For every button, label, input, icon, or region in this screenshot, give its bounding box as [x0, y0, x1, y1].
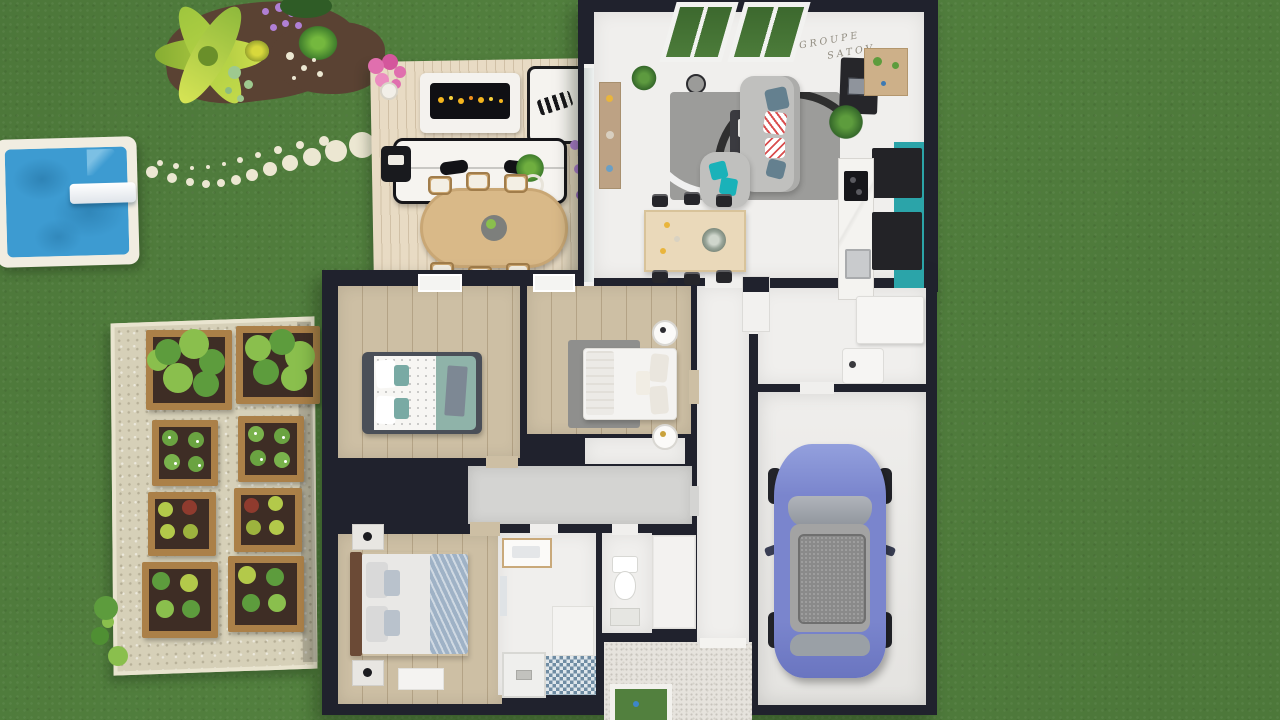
- flower-specks: [168, 436, 171, 439]
- deck-chair: [504, 174, 528, 193]
- bath-cabinet: [552, 606, 594, 656]
- stepping-stones: [146, 166, 386, 206]
- cooktop: [844, 171, 868, 201]
- planter-greens: [142, 562, 218, 638]
- kitchen-base-cabinet: [872, 212, 922, 270]
- car-body: [774, 444, 886, 678]
- bedroom-1-window: [418, 274, 462, 292]
- nightstand: [352, 660, 384, 686]
- swimming-pool: [0, 136, 140, 268]
- pebbles: [286, 52, 294, 60]
- bed-2: [583, 348, 677, 420]
- planter-greens: [228, 556, 304, 632]
- flower-specks: [254, 432, 257, 435]
- hall-console: [742, 276, 770, 332]
- nightstand-round: [652, 424, 678, 450]
- tray-plant: [486, 219, 496, 229]
- dining-table: [644, 210, 746, 272]
- leafy-greens: [238, 566, 256, 584]
- entry-lawn-inset: [610, 684, 672, 720]
- planter-strawberry: [152, 420, 218, 486]
- headboard: [350, 552, 362, 656]
- washer-unit: [856, 296, 924, 344]
- drape: [586, 351, 614, 415]
- outdoor-fireplace: [420, 73, 520, 133]
- planter-lettuce: [234, 488, 302, 552]
- sprinkler: [633, 701, 639, 707]
- pillow-slate: [765, 158, 787, 180]
- tomato-plants: [245, 335, 271, 361]
- door-hallway-corridor: [690, 486, 699, 516]
- lettuce-plants: [244, 498, 259, 513]
- sideboard: [599, 82, 621, 189]
- deck-chair: [428, 176, 452, 195]
- pillow-pattern: [765, 138, 785, 158]
- door-hallway-bedroom2: [689, 370, 699, 404]
- mirror: [500, 576, 507, 616]
- dining-chair: [684, 192, 700, 205]
- toilet-bowl: [614, 571, 636, 600]
- tomato-plants: [155, 339, 181, 365]
- planter-lettuce: [148, 492, 216, 556]
- pillow-small: [384, 570, 400, 596]
- stone: [146, 166, 158, 178]
- planter-tomato: [146, 330, 232, 410]
- planter-strawberry: [238, 416, 304, 482]
- bed-1: [362, 352, 482, 434]
- dining-chair: [684, 272, 700, 285]
- car: [774, 444, 886, 678]
- flower-bed: [140, 0, 400, 120]
- floor-lamp: [686, 74, 706, 94]
- door-corridor-bedroom1: [486, 456, 518, 468]
- kitchen-cabinet-black: [872, 148, 922, 198]
- mosaic-floor: [542, 656, 596, 695]
- water-heater: [842, 348, 884, 384]
- rear-window: [790, 634, 870, 656]
- entry-wardrobe: [652, 535, 696, 629]
- deck-chair: [466, 172, 490, 191]
- flower-pot-pink: [366, 56, 410, 100]
- tall-plant: [628, 62, 660, 94]
- centerpiece: [702, 228, 726, 252]
- diving-board: [70, 182, 137, 204]
- car-roof: [790, 524, 870, 632]
- toilet: [612, 556, 636, 600]
- lamp: [363, 532, 372, 541]
- pool-steps: [87, 149, 116, 176]
- shower-drain: [516, 670, 532, 680]
- dining-chair: [716, 194, 732, 207]
- lamp: [363, 668, 372, 677]
- pot: [380, 82, 398, 100]
- door-corridor-bedroom3: [470, 522, 500, 536]
- side-table: [381, 146, 411, 182]
- pillow-slate: [764, 86, 790, 112]
- sunroof: [798, 534, 866, 624]
- leafy-greens: [152, 572, 170, 590]
- green-grass-tuft: [292, 20, 344, 66]
- vanity: [502, 538, 552, 568]
- pillow-small: [384, 610, 400, 636]
- pillow-teal: [394, 398, 409, 419]
- spill-plants: [94, 596, 118, 620]
- planter-tomato: [236, 326, 320, 404]
- door-wc: [612, 524, 638, 535]
- throw-gray: [444, 365, 467, 416]
- dressing-corridor-floor: [468, 466, 692, 524]
- pillow-teal: [394, 365, 409, 386]
- knit-blanket: [430, 554, 468, 654]
- bedside-rug: [398, 668, 444, 690]
- nightstand-round: [652, 320, 678, 346]
- dining-chair: [652, 270, 668, 283]
- yellow-grass-tuft: [240, 36, 274, 66]
- front-door-threshold: [700, 638, 746, 648]
- pillow: [649, 353, 670, 383]
- wc-mat: [610, 608, 640, 626]
- kitchen-plant: [824, 100, 868, 144]
- door-utility-garage: [800, 382, 834, 394]
- pillow-pattern: [763, 111, 788, 136]
- door-bathroom: [530, 524, 558, 535]
- outdoor-dining-table: [420, 188, 568, 268]
- sliding-glass-door: [584, 64, 594, 286]
- pillow: [649, 385, 669, 414]
- pillow-small: [636, 371, 650, 395]
- kitchen-counter: [838, 158, 874, 300]
- allium-flowers: [262, 8, 269, 15]
- shower-tray: [502, 652, 546, 698]
- lumbar-pillow: [439, 159, 469, 176]
- wall-shelf: [864, 48, 908, 96]
- sink: [845, 249, 871, 279]
- lettuce-plants: [158, 502, 173, 517]
- bedroom-2-window: [533, 274, 575, 292]
- floorplan-3d-viewport[interactable]: GROUPE SATOV: [0, 0, 1280, 720]
- striped-pillow: [536, 90, 573, 116]
- flames: [438, 97, 444, 103]
- dining-chair: [716, 270, 732, 283]
- dining-chair: [652, 194, 668, 207]
- hallway-floor: [697, 286, 749, 644]
- succulents: [228, 66, 241, 79]
- bed-3: [350, 552, 468, 656]
- nightstand: [352, 524, 384, 550]
